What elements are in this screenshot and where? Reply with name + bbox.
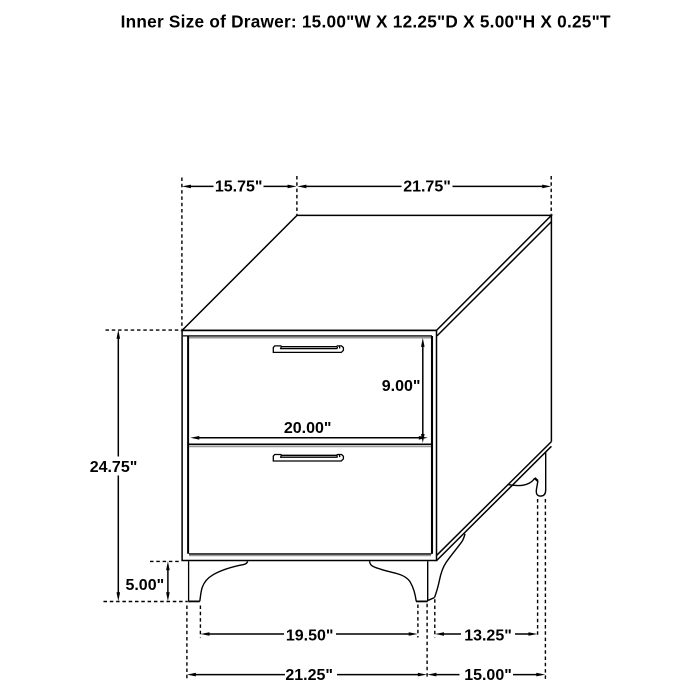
svg-text:24.75": 24.75" — [90, 459, 138, 476]
svg-text:21.25": 21.25" — [285, 667, 333, 684]
svg-text:15.00": 15.00" — [464, 667, 512, 684]
svg-text:13.25": 13.25" — [464, 627, 512, 644]
svg-text:20.00": 20.00" — [284, 420, 332, 437]
svg-text:19.50": 19.50" — [286, 627, 334, 644]
svg-text:15.75": 15.75" — [215, 179, 263, 196]
svg-text:21.75": 21.75" — [403, 179, 451, 196]
svg-text:Inner Size of Drawer: 15.00"W: Inner Size of Drawer: 15.00"W X 12.25"D … — [121, 12, 611, 32]
svg-text:5.00": 5.00" — [125, 577, 164, 594]
svg-text:9.00": 9.00" — [382, 378, 421, 395]
